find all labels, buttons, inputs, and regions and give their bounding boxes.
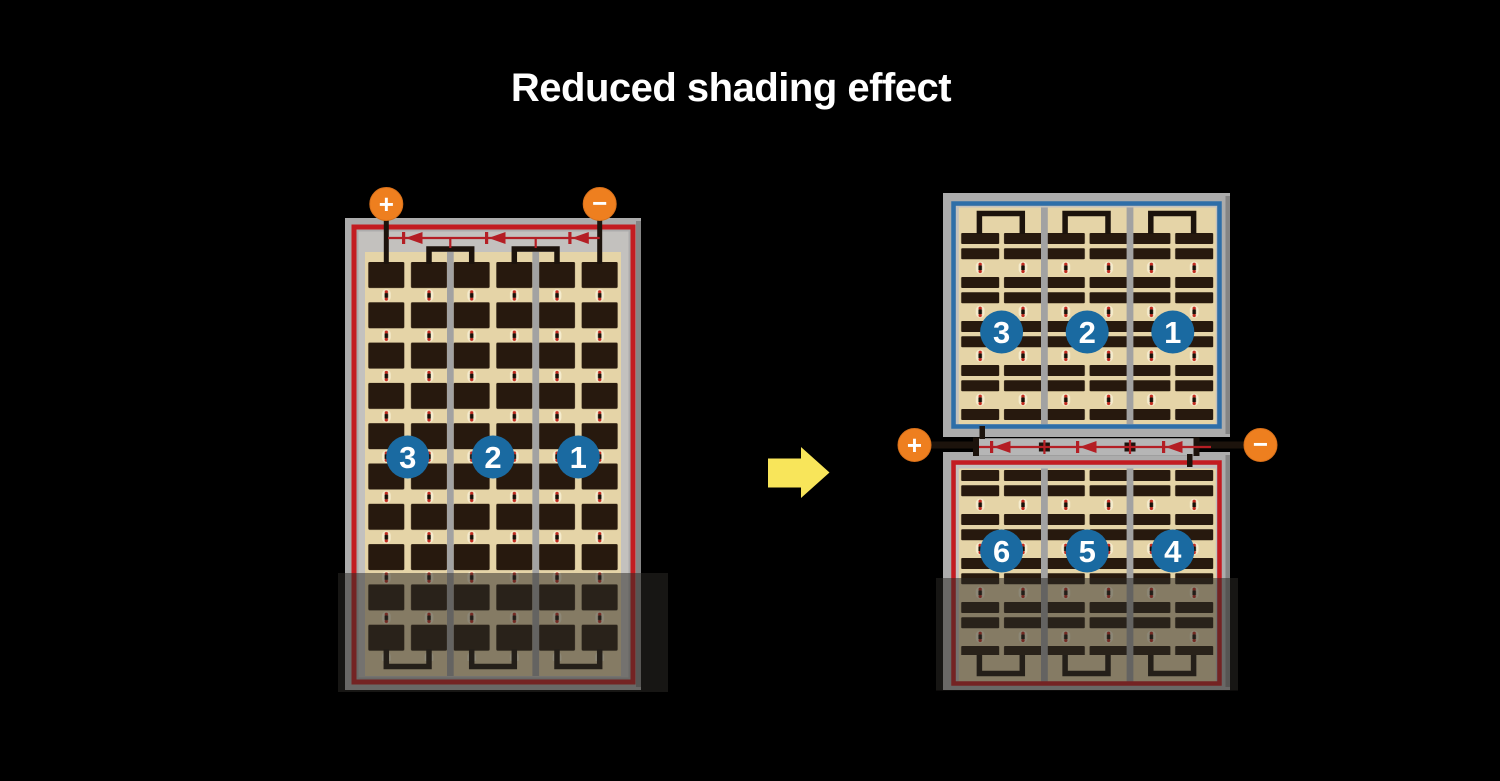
- series-link: [980, 426, 986, 439]
- positive-terminal: +: [898, 429, 931, 462]
- shading-diagram: Reduced shading effect + −: [0, 0, 1500, 781]
- string-badge: 6: [980, 530, 1023, 573]
- badge-label: 5: [1079, 534, 1096, 569]
- frame-edge-shadow: [1226, 196, 1231, 434]
- column-gutter: [1041, 208, 1048, 425]
- string-badge: 1: [557, 436, 600, 479]
- page-title: Reduced shading effect: [511, 66, 951, 110]
- badge-label: 3: [993, 315, 1010, 350]
- series-link: [1187, 454, 1193, 467]
- negative-terminal: −: [1244, 429, 1277, 462]
- plus-icon: +: [379, 189, 394, 219]
- badge-label: 3: [399, 440, 416, 475]
- positive-lead: [930, 442, 974, 449]
- string-badge: 3: [386, 436, 429, 479]
- string-badge: 1: [1151, 311, 1194, 354]
- minus-icon: −: [1253, 429, 1268, 459]
- negative-terminal: −: [583, 188, 616, 221]
- column-gutter: [1127, 208, 1134, 425]
- string-badge: 2: [472, 436, 515, 479]
- diagram-canvas: Reduced shading effect + −: [0, 0, 1500, 781]
- right-top-panel: 3 2 1: [943, 193, 1230, 437]
- badge-label: 2: [484, 440, 501, 475]
- badge-label: 6: [993, 534, 1010, 569]
- string-badge: 5: [1066, 530, 1109, 573]
- string-badge: 4: [1151, 530, 1194, 573]
- shade-overlay-left: [338, 573, 668, 692]
- minus-icon: −: [592, 188, 607, 218]
- positive-terminal: +: [370, 188, 403, 221]
- badge-label: 2: [1079, 315, 1096, 350]
- plus-icon: +: [907, 430, 922, 460]
- lead-cap: [973, 438, 979, 457]
- shade-overlay-right: [936, 578, 1238, 691]
- badge-label: 1: [1164, 315, 1181, 350]
- arrow-right-icon: [768, 447, 830, 498]
- badge-label: 1: [570, 440, 587, 475]
- badge-label: 4: [1164, 534, 1182, 569]
- string-badge: 3: [980, 311, 1023, 354]
- string-badge: 2: [1066, 311, 1109, 354]
